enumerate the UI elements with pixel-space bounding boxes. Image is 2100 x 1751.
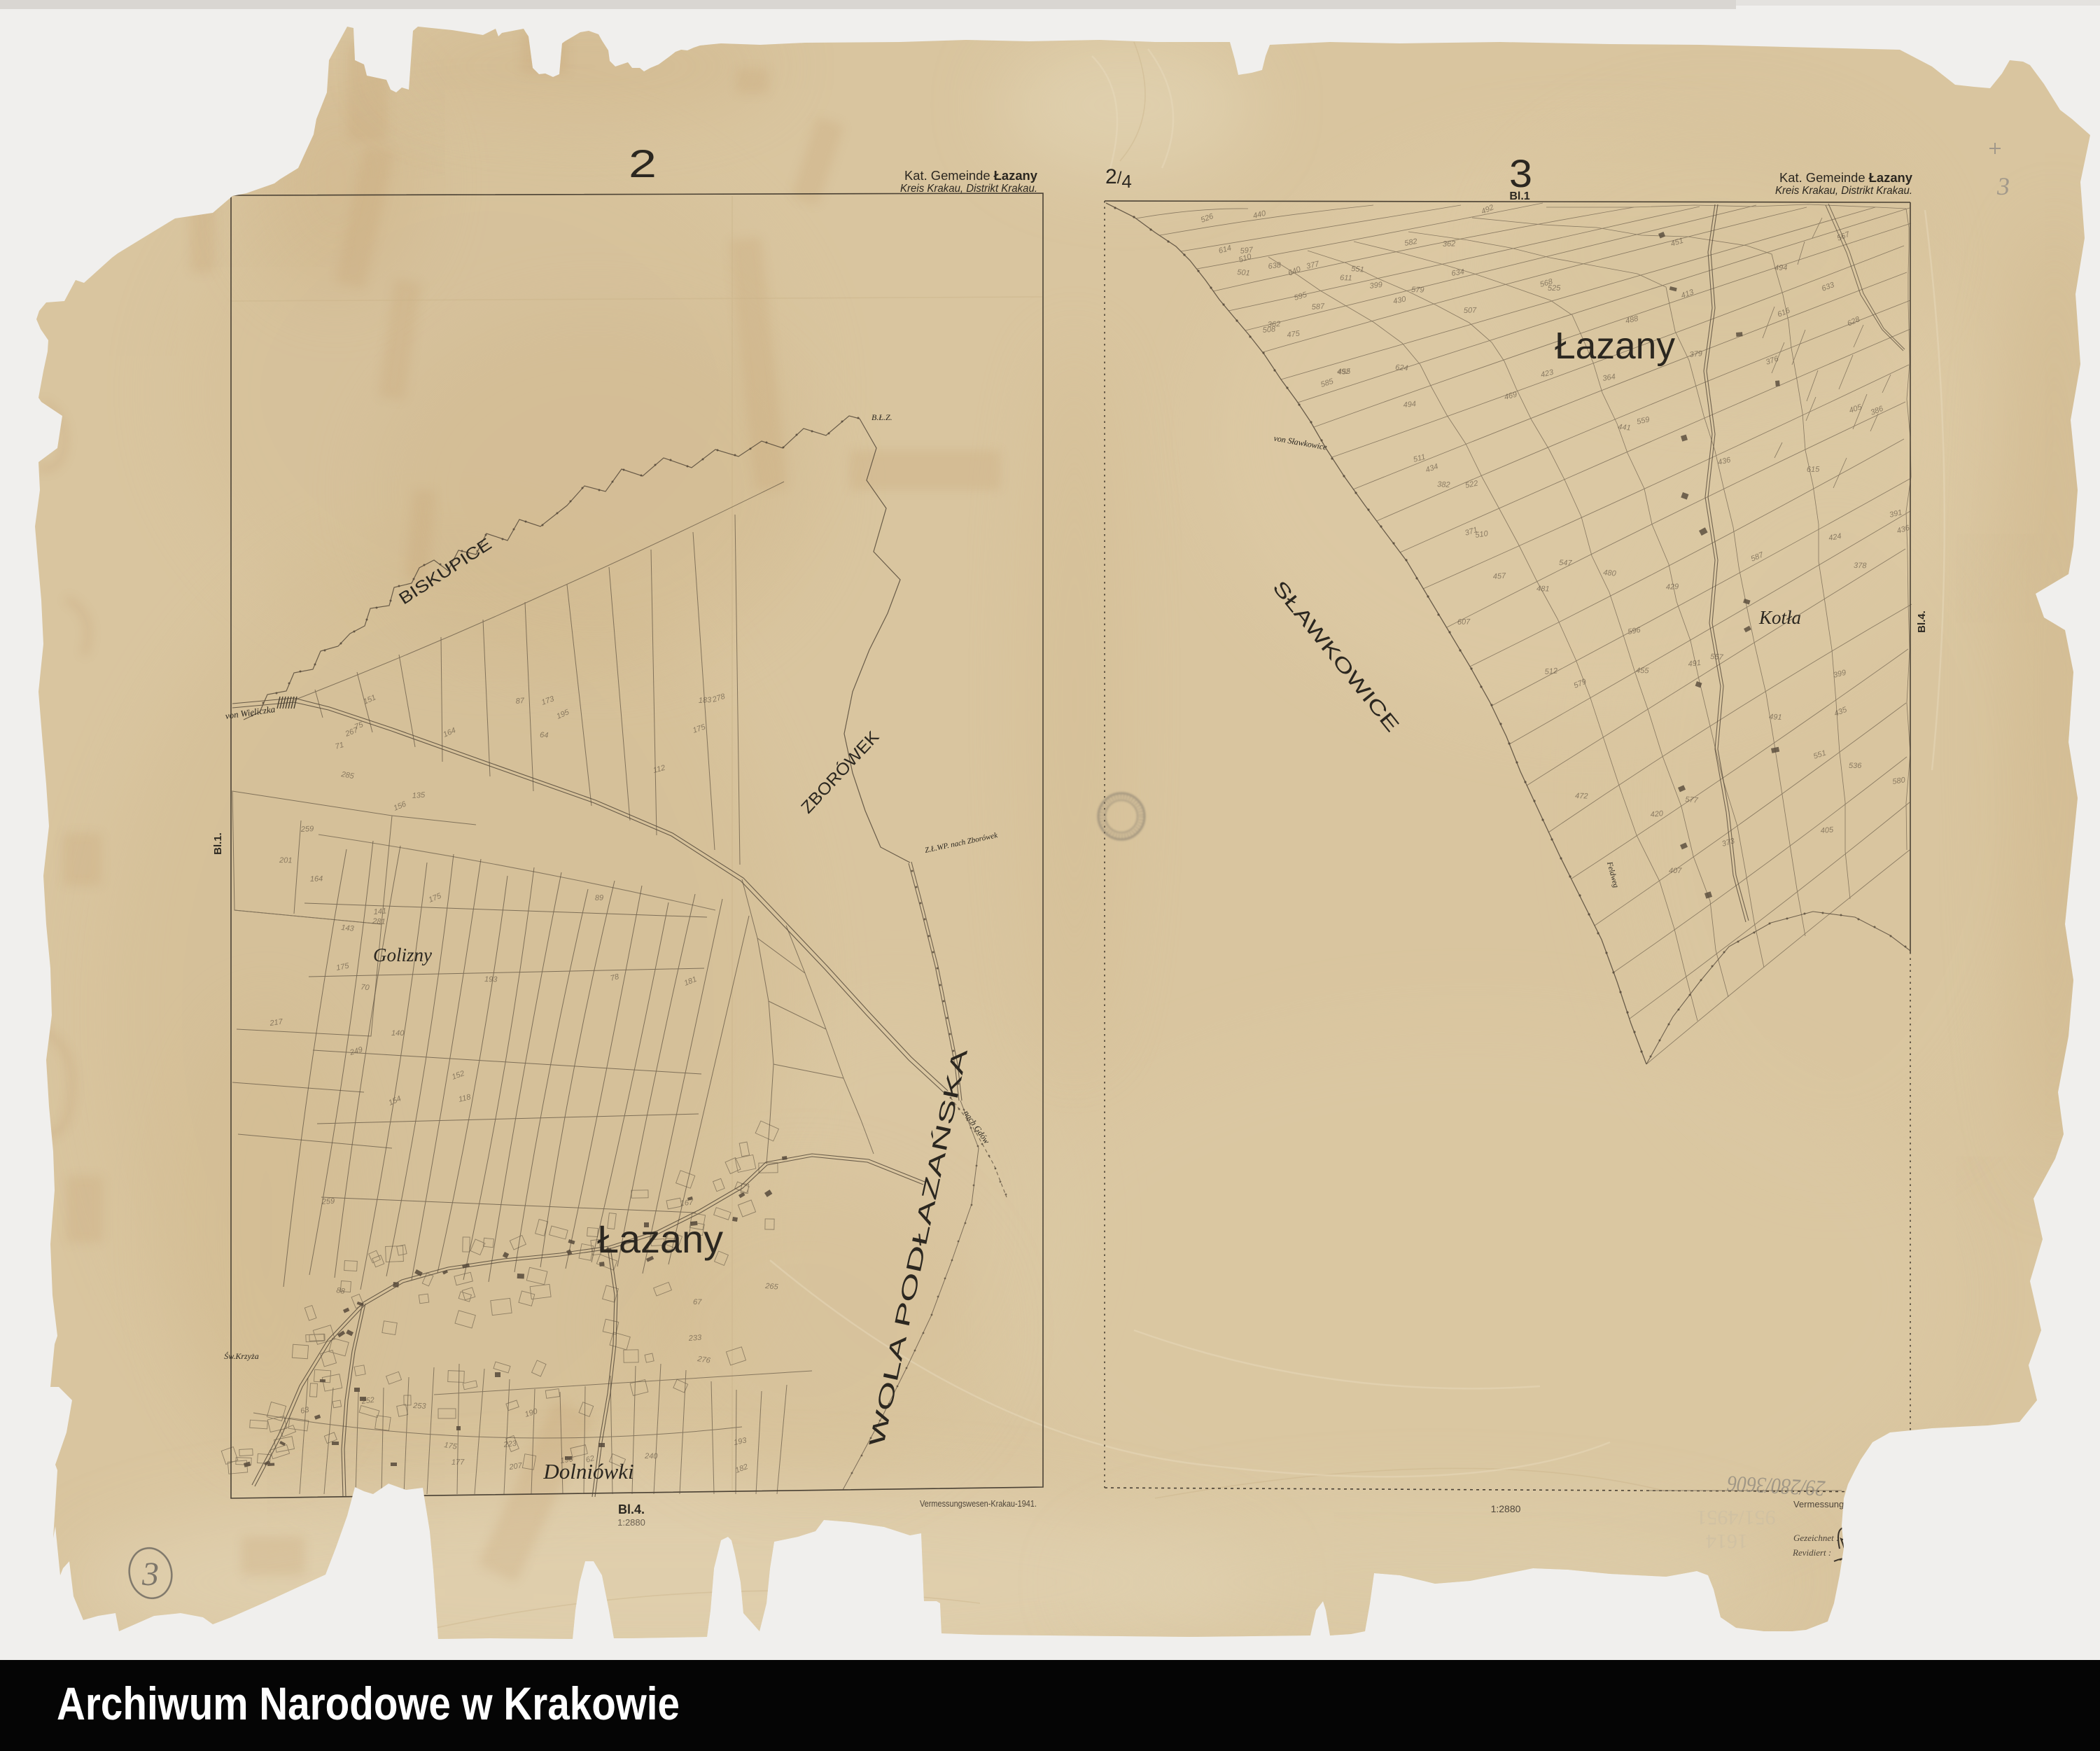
svg-text:457: 457	[1492, 572, 1506, 581]
svg-text:Św.Krzyża: Św.Krzyża	[224, 1351, 258, 1361]
svg-text:501: 501	[1237, 268, 1250, 278]
svg-text:Łazany: Łazany	[1555, 325, 1675, 367]
svg-text:399: 399	[1369, 281, 1383, 291]
svg-text:281: 281	[372, 917, 386, 926]
svg-text:Archiwum Narodowe w Krakowie: Archiwum Narodowe w Krakowie	[57, 1677, 680, 1729]
svg-text:64: 64	[540, 731, 549, 740]
svg-text:624: 624	[1395, 363, 1408, 372]
svg-text:634: 634	[1451, 268, 1465, 278]
svg-text:259: 259	[321, 1197, 335, 1206]
svg-text:491: 491	[1769, 713, 1782, 722]
svg-text:141: 141	[373, 907, 386, 916]
svg-text:455: 455	[1636, 667, 1649, 675]
svg-text:Dolniówki: Dolniówki	[542, 1459, 633, 1484]
svg-text:480: 480	[1603, 568, 1617, 578]
svg-text:3: 3	[1509, 151, 1532, 195]
svg-text:579: 579	[1411, 286, 1424, 295]
svg-text:2: 2	[629, 141, 657, 186]
svg-text:87: 87	[515, 697, 525, 706]
svg-text:Kat. Gemeinde Łazany: Kat. Gemeinde Łazany	[1779, 171, 1912, 185]
svg-text:164: 164	[310, 874, 323, 884]
svg-text:1:2880: 1:2880	[617, 1517, 645, 1528]
svg-text:378: 378	[1854, 561, 1867, 570]
svg-text:240: 240	[644, 1452, 658, 1460]
svg-text:Golizny: Golizny	[373, 944, 432, 965]
svg-text:B.Ł.Z.: B.Ł.Z.	[871, 412, 892, 422]
svg-text:193: 193	[484, 975, 498, 984]
svg-text:167: 167	[680, 1199, 694, 1208]
svg-text:615: 615	[1807, 466, 1820, 474]
svg-text:525: 525	[1548, 284, 1561, 293]
svg-text:Kat. Gemeinde Łazany: Kat. Gemeinde Łazany	[904, 169, 1037, 183]
svg-text:Bl.1: Bl.1	[1509, 190, 1529, 202]
svg-text:Bl.4.: Bl.4.	[1916, 611, 1928, 633]
svg-text:1614: 1614	[1706, 1530, 1748, 1553]
svg-text:481: 481	[1536, 585, 1550, 594]
svg-text:Vermessungswesen-Krakau-1941.: Vermessungswesen-Krakau-1941.	[920, 1498, 1037, 1509]
svg-text:429: 429	[1666, 582, 1679, 592]
svg-text:407: 407	[1669, 867, 1682, 875]
svg-text:Revidiert :: Revidiert :	[1792, 1547, 1831, 1558]
svg-text:420: 420	[1650, 809, 1664, 819]
svg-text:Kreis Krakau, Distrikt Krakau.: Kreis Krakau, Distrikt Krakau.	[900, 183, 1037, 195]
svg-text:472: 472	[1575, 792, 1588, 801]
svg-text:405: 405	[1820, 825, 1834, 835]
svg-text:177: 177	[451, 1458, 465, 1467]
svg-text:29/280/3606: 29/280/3606	[1727, 1471, 1826, 1501]
svg-text:607: 607	[1457, 618, 1471, 627]
svg-text:638: 638	[1268, 261, 1282, 271]
svg-text:143: 143	[341, 923, 355, 933]
svg-text:577: 577	[1685, 795, 1699, 805]
svg-text:547: 547	[1559, 559, 1573, 568]
svg-text:3: 3	[1996, 172, 2010, 200]
svg-text:Bl.1.: Bl.1.	[212, 832, 224, 855]
svg-text:265: 265	[764, 1282, 779, 1292]
svg-text:951/4951: 951/4951	[1696, 1506, 1775, 1529]
svg-text:587: 587	[1311, 302, 1325, 312]
svg-text:89: 89	[595, 894, 604, 902]
svg-text:Kotła: Kotła	[1758, 607, 1801, 628]
svg-text:536: 536	[1849, 762, 1862, 770]
svg-text:70: 70	[360, 983, 370, 992]
svg-text:223: 223	[503, 1439, 518, 1449]
svg-text:557: 557	[1710, 653, 1724, 662]
svg-text:233: 233	[687, 1334, 702, 1343]
svg-text:382: 382	[1437, 480, 1450, 489]
svg-text:201: 201	[279, 856, 293, 865]
svg-text:Kreis Krakau, Distrikt Krakau.: Kreis Krakau, Distrikt Krakau.	[1775, 185, 1912, 197]
svg-text:1:2880: 1:2880	[1491, 1503, 1521, 1514]
svg-text:441: 441	[1618, 423, 1631, 433]
svg-text:362: 362	[1443, 239, 1456, 249]
svg-text:508: 508	[1262, 325, 1276, 335]
svg-text:3: 3	[141, 1556, 159, 1593]
svg-text:67: 67	[693, 1298, 702, 1306]
svg-text:492: 492	[1337, 368, 1350, 376]
svg-text:512: 512	[1544, 667, 1557, 676]
svg-text:379: 379	[1689, 349, 1703, 359]
svg-text:135: 135	[412, 791, 426, 800]
svg-text:551: 551	[1351, 265, 1364, 274]
svg-text:597: 597	[1240, 246, 1254, 256]
svg-text:507: 507	[1464, 306, 1478, 315]
svg-text:Bl.4.: Bl.4.	[618, 1502, 645, 1516]
svg-text:Gezeichnet :: Gezeichnet :	[1793, 1533, 1839, 1543]
svg-text:252: 252	[360, 1396, 375, 1406]
svg-text:491: 491	[1688, 659, 1702, 669]
svg-text:611: 611	[1340, 274, 1352, 283]
svg-text:Łazany: Łazany	[597, 1217, 723, 1261]
svg-text:259: 259	[300, 825, 314, 834]
svg-text:140: 140	[391, 1029, 405, 1038]
svg-text:253: 253	[412, 1402, 427, 1411]
svg-text:494: 494	[1774, 264, 1788, 272]
svg-text:494: 494	[1403, 400, 1417, 410]
svg-text:183: 183	[699, 696, 713, 705]
